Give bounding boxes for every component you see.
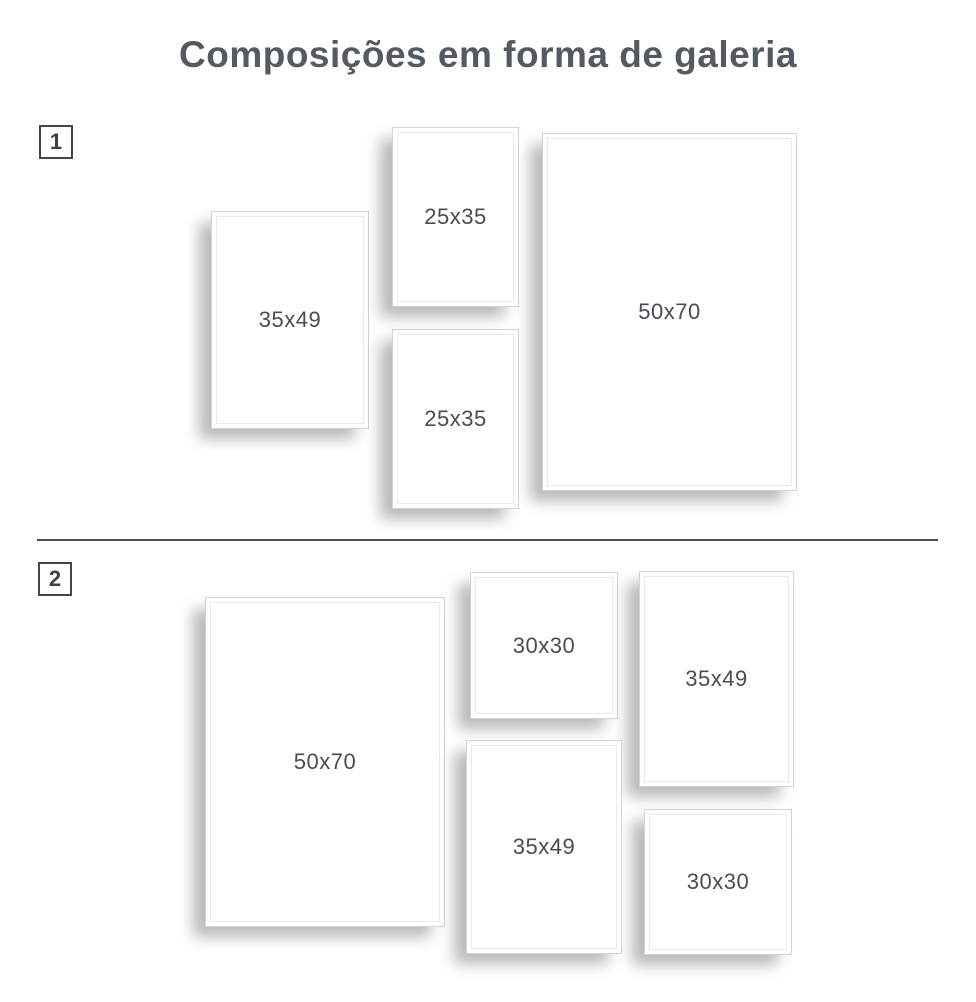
section-divider bbox=[37, 539, 938, 541]
gallery-compositions-infographic: Composições em forma de galeria 1 35x49 … bbox=[0, 0, 976, 1002]
frame-size-label: 50x70 bbox=[638, 299, 700, 325]
frame-25x35-bottom-section1: 25x35 bbox=[392, 329, 519, 509]
frame-size-label: 25x35 bbox=[424, 204, 486, 230]
frame-size-label: 35x49 bbox=[259, 307, 321, 333]
frame-30x30-top-section2: 30x30 bbox=[470, 572, 618, 719]
section-1-badge: 1 bbox=[39, 125, 73, 159]
frame-50x70-section1: 50x70 bbox=[542, 133, 797, 491]
frame-35x49-section1: 35x49 bbox=[211, 211, 369, 429]
frame-size-label: 35x49 bbox=[513, 834, 575, 860]
section-2-badge: 2 bbox=[38, 562, 72, 596]
frame-size-label: 30x30 bbox=[687, 869, 749, 895]
frame-size-label: 30x30 bbox=[513, 633, 575, 659]
frame-50x70-section2: 50x70 bbox=[205, 597, 445, 927]
frame-25x35-top-section1: 25x35 bbox=[392, 127, 519, 307]
frame-35x49-right-section2: 35x49 bbox=[639, 571, 794, 787]
frame-30x30-bottom-section2: 30x30 bbox=[644, 809, 792, 955]
frame-size-label: 35x49 bbox=[685, 666, 747, 692]
page-title: Composições em forma de galeria bbox=[0, 34, 976, 76]
frame-size-label: 50x70 bbox=[294, 749, 356, 775]
frame-size-label: 25x35 bbox=[424, 406, 486, 432]
frame-35x49-middle-section2: 35x49 bbox=[466, 740, 622, 954]
